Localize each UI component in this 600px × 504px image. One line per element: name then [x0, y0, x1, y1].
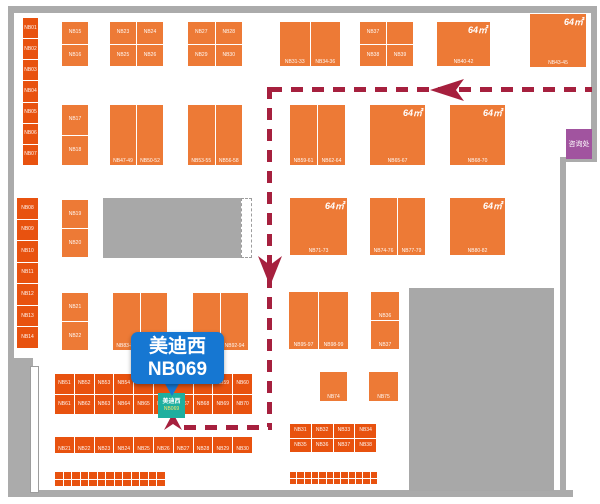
wall-segment: [8, 6, 14, 360]
booth-number-label: NB37: [367, 29, 380, 36]
booth-number-label: NB47-49: [113, 158, 133, 165]
booth-d4: NB36NB37: [371, 292, 399, 349]
booth-cell: NB68-70: [450, 105, 505, 165]
wall-segment: [13, 490, 573, 497]
booth-cell: [349, 479, 355, 485]
booth-cell: NB14: [17, 327, 38, 348]
booth-cell: NB60: [233, 374, 252, 394]
booth-number-label: NB10: [21, 248, 34, 255]
booth-cell: NB92-94: [221, 293, 248, 350]
booth-cell: NB23: [110, 22, 136, 44]
booth-cell: [149, 480, 157, 487]
booth-number-label: NB21: [58, 446, 71, 453]
booth-number-label: NB30: [222, 52, 235, 59]
booth-cell: NB07: [23, 145, 38, 165]
booth-cell: [140, 480, 148, 487]
service-area-block: [103, 198, 242, 258]
booth-cell: [305, 472, 311, 478]
booth-cell: NB34-36: [311, 22, 341, 66]
booth-cell: NB39: [387, 45, 413, 67]
booth-cell: [312, 472, 318, 478]
booth-cell: [319, 472, 325, 478]
booth-col-c: NB19NB20: [62, 200, 88, 257]
booth-cell: NB56-58: [216, 105, 243, 165]
booth-cell: [290, 479, 296, 485]
booth-number-label: NB07: [24, 151, 37, 158]
callout-pointer: [164, 382, 180, 396]
booth-cell: NB64: [114, 395, 133, 415]
booth-cell: [64, 480, 72, 487]
booth-col-d: NB21NB22: [62, 293, 88, 350]
booth-a2: NB27NB28NB29NB30: [188, 22, 242, 66]
booth-number-label: NB50-52: [140, 158, 160, 165]
booth-number-label: NB62-64: [322, 158, 342, 165]
booth-number-label: NB62: [78, 401, 91, 408]
booth-cell: NB31-33: [280, 22, 310, 66]
booth-number-label: NB23: [98, 446, 111, 453]
booth-cell: NB34: [355, 424, 376, 438]
booth-number-label: NB11: [21, 269, 33, 276]
booth-number-label: NB31: [294, 427, 307, 434]
booth-number-label: NB17: [69, 116, 82, 123]
booth-number-label: NB64: [118, 401, 131, 408]
booth-cell: NB18: [62, 136, 88, 166]
booth-g-right: [290, 472, 377, 484]
booth-number-label: NB70: [236, 401, 249, 408]
booth-cell: [64, 472, 72, 479]
booth-cell: NB68: [194, 395, 213, 415]
booth-cell: [55, 480, 63, 487]
booth-cell: NB28: [194, 437, 213, 453]
booth-cell: [363, 472, 369, 478]
booth-cell: [363, 479, 369, 485]
booth-cell: NB25: [134, 437, 153, 453]
booth-cell: [115, 480, 123, 487]
booth-number-label: NB24: [118, 446, 131, 453]
booth-cell: NB35: [290, 439, 311, 453]
booth-cell: NB71-73: [290, 198, 347, 255]
booth-number-label: NB27: [195, 29, 208, 36]
booth-number-label: NB24: [144, 29, 157, 36]
booth-a3: NB31-33NB34-36: [280, 22, 340, 66]
booth-cell: NB03: [23, 60, 38, 80]
booth-number-label: NB16: [69, 52, 82, 59]
booth-number-label: NB56-58: [219, 158, 239, 165]
booth-number-label: NB74: [327, 394, 340, 401]
route-dashed-line: [184, 425, 272, 430]
booth-cell: [149, 472, 157, 479]
booth-number-label: NB18: [69, 147, 82, 154]
callout-booth-number: NB069: [148, 358, 207, 381]
service-area-block: [409, 288, 554, 491]
booth-number-label: NB15: [69, 29, 82, 36]
booth-cell: [72, 472, 80, 479]
booth-cell: [157, 480, 165, 487]
booth-number-label: NB74-76: [374, 248, 394, 255]
booth-cell: NB26: [137, 45, 163, 67]
booth-cell: [319, 479, 325, 485]
booth-cell: NB52: [75, 374, 94, 394]
booth-cell: NB43-45: [530, 14, 586, 67]
booth-number-label: NB04: [24, 88, 37, 95]
booth-cell: NB31: [290, 424, 311, 438]
booth-number-label: NB52: [78, 380, 91, 387]
booth-number-label: NB32: [316, 427, 329, 434]
floor-plan-map: 美迪西 NB069 美迪西 NB069 咨询处 NB01NB02NB03NB04…: [0, 0, 600, 504]
booth-cell: [356, 479, 362, 485]
booth-number-label: NB22: [69, 333, 82, 340]
booth-number-label: NB75: [377, 394, 390, 401]
booth-number-label: NB53-55: [191, 158, 211, 165]
booth-d3: NB95-97NB98-99: [289, 292, 348, 349]
booth-cell: NB36: [371, 292, 399, 320]
booth-cell: [81, 472, 89, 479]
booth-number-label: NB27: [177, 446, 190, 453]
booth-cell: NB65: [134, 395, 153, 415]
booth-cell: NB65-67: [370, 105, 425, 165]
booth-cell: NB30: [216, 45, 243, 67]
booth-number-label: NB60: [236, 380, 249, 387]
wall-recess: [30, 366, 39, 493]
booth-cell: [290, 472, 296, 478]
booth-number-label: NB13: [21, 313, 34, 320]
booth-number-label: NB23: [117, 29, 130, 36]
booth-cell: NB51: [55, 374, 74, 394]
booth-cell: NB27: [188, 22, 215, 44]
booth-number-label: NB26: [157, 446, 170, 453]
booth-number-label: NB51: [58, 380, 71, 387]
booth-number-label: NB21: [69, 304, 82, 311]
booth-number-label: NB68: [197, 401, 210, 408]
booth-cell: [327, 472, 333, 478]
booth-number-label: NB33: [338, 427, 351, 434]
booth-cell: [387, 22, 413, 44]
booth-number-label: NB30: [236, 446, 249, 453]
booth-cell: NB53-55: [188, 105, 215, 165]
booth-number-label: NB95-97: [294, 342, 314, 349]
booth-cell: NB13: [17, 306, 38, 327]
booth-cell: [341, 472, 347, 478]
booth-cell: NB10: [17, 241, 38, 262]
booth-cell: [297, 472, 303, 478]
booth-cell: [123, 480, 131, 487]
booth-col-b: NB17NB18: [62, 105, 88, 165]
booth-cell: NB37: [360, 22, 386, 44]
highlighted-booth-medicilon: 美迪西 NB069: [158, 393, 185, 418]
booth-cell: [72, 480, 80, 487]
booth-number-label: NB37: [338, 442, 351, 449]
booth-number-label: NB03: [24, 67, 37, 74]
route-arrow-down: [258, 256, 282, 291]
booth-number-label: NB28: [197, 446, 210, 453]
booth-cell: NB59-61: [290, 105, 317, 165]
booth-cell: [297, 479, 303, 485]
booth-number-label: NB54: [118, 380, 131, 387]
booth-number-label: NB98-99: [324, 342, 344, 349]
booth-cell: NB38: [360, 45, 386, 67]
booth-number-label: NB68-70: [468, 158, 488, 165]
booth-cell: [140, 472, 148, 479]
booth-number-label: NB59-61: [294, 158, 314, 165]
booth-number-label: NB08: [21, 205, 34, 212]
information-desk: 咨询处: [566, 129, 592, 159]
booth-cell: NB22: [62, 322, 88, 350]
booth-cell: NB70: [233, 395, 252, 415]
booth-number-label: NB25: [117, 52, 130, 59]
booth-number-label: NB19: [69, 211, 82, 218]
route-arrow-left: [430, 79, 464, 106]
booth-cell: NB32: [312, 424, 333, 438]
booth-strip-left-2: NB08NB09NB10NB11NB12NB13NB14: [17, 198, 38, 348]
booth-number-label: NB31-33: [285, 59, 305, 66]
booth-cell: NB38: [355, 439, 376, 453]
booth-cell: [157, 472, 165, 479]
booth-cell: NB50-52: [137, 105, 163, 165]
booth-cell: NB06: [23, 124, 38, 144]
booth-c2: NB74-76NB77-79: [370, 198, 425, 255]
booth-cell: NB98-99: [319, 292, 348, 349]
booth-cell: NB11: [17, 263, 38, 284]
booth-cell: NB69: [213, 395, 232, 415]
booth-cell: NB25: [110, 45, 136, 67]
booth-cell: NB09: [17, 220, 38, 241]
booth-number-label: NB28: [222, 29, 235, 36]
booth-cell: NB62: [75, 395, 94, 415]
booth-cell: [371, 479, 377, 485]
booth-cell: NB63: [95, 395, 114, 415]
booth-number-label: NB36: [316, 442, 329, 449]
booth-cell: [115, 472, 123, 479]
booth-cell: NB28: [216, 22, 243, 44]
booth-cell: NB27: [174, 437, 193, 453]
booth-number-label: NB80-82: [468, 248, 488, 255]
booth-number-label: NB77-79: [402, 248, 422, 255]
booth-a4: NB37NB38NB39: [360, 22, 413, 66]
booth-number-label: NB14: [21, 334, 34, 341]
booth-number-label: NB02: [24, 46, 37, 53]
booth-number-label: NB34-36: [315, 59, 335, 66]
booth-cell: NB04: [23, 81, 38, 101]
booth-a6: NB43-4564㎡: [530, 14, 586, 67]
booth-cell: [305, 479, 311, 485]
booth-cell: NB36: [312, 439, 333, 453]
booth-b2: NB53-55NB56-58: [188, 105, 242, 165]
booth-cell: [55, 472, 63, 479]
booth-number-label: NB61: [58, 401, 71, 408]
booth-number-label: NB43-45: [548, 60, 568, 67]
booth-cell: [341, 479, 347, 485]
information-desk-label: 咨询处: [569, 139, 590, 149]
booth-cell: [349, 472, 355, 478]
dashed-outline-area: [241, 198, 252, 258]
booth-cell: [81, 480, 89, 487]
booth-number-label: NB65: [137, 401, 150, 408]
booth-cell: [132, 480, 140, 487]
booth-cell: NB74: [320, 372, 347, 401]
booth-cell: [89, 472, 97, 479]
booth-number-label: NB34: [359, 427, 372, 434]
booth-cell: [132, 472, 140, 479]
booth-cell: NB01: [23, 18, 38, 38]
booth-cell: NB62-64: [318, 105, 345, 165]
booth-number-label: NB09: [21, 226, 34, 233]
booth-number-label: NB25: [137, 446, 150, 453]
booth-number-label: NB06: [24, 130, 37, 137]
booth-number-label: NB38: [359, 442, 372, 449]
booth-cell: NB33: [334, 424, 355, 438]
booth-c3: NB80-8264㎡: [450, 198, 505, 255]
booth-cell: [106, 480, 114, 487]
booth-number-label: NB35: [294, 442, 307, 449]
booth-cell: NB08: [17, 198, 38, 219]
booth-cell: NB05: [23, 103, 38, 123]
booth-number-label: NB29: [195, 52, 208, 59]
booth-cell: NB75: [369, 372, 398, 401]
booth-a5: NB40-4264㎡: [437, 22, 490, 66]
booth-number-label: NB53: [98, 380, 111, 387]
booth-cell: NB17: [62, 105, 88, 135]
booth-number-label: NB40-42: [454, 59, 474, 66]
booth-c1: NB71-7364㎡: [290, 198, 347, 255]
booth-cell: [98, 472, 106, 479]
wall-segment: [560, 157, 566, 497]
callout-company-name: 美迪西: [149, 335, 206, 358]
booth-cell: [89, 480, 97, 487]
booth-cell: NB15: [62, 22, 88, 44]
booth-sq2: NB75: [369, 372, 398, 401]
booth-cell: NB02: [23, 39, 38, 59]
booth-cell: NB16: [62, 45, 88, 67]
booth-number-label: NB29: [217, 446, 230, 453]
booth-number-label: NB05: [24, 109, 37, 116]
booth-cell: NB19: [62, 200, 88, 228]
booth-cell: NB22: [75, 437, 94, 453]
booth-cell: [334, 479, 340, 485]
booth-cell: [106, 472, 114, 479]
booth-cell: [312, 479, 318, 485]
booth-cell: NB21: [62, 293, 88, 321]
booth-number-label: NB65-67: [388, 158, 408, 165]
booth-cell: [123, 472, 131, 479]
booth-cell: NB20: [62, 229, 88, 257]
booth-cell: NB47-49: [110, 105, 136, 165]
booth-number-label: NB39: [394, 52, 407, 59]
booth-row-f: NB21NB22NB23NB24NB25NB26NB27NB28NB29NB30: [55, 437, 252, 453]
booth-number-label: NB63: [98, 401, 111, 408]
booth-number-label: NB71-73: [309, 248, 329, 255]
booth-number-label: NB37: [379, 342, 392, 349]
booth-cell: [98, 480, 106, 487]
booth-row-g: [55, 472, 165, 486]
booth-number-label: NB01: [24, 25, 37, 32]
highlighted-booth-number: NB069: [164, 406, 179, 412]
booth-cell: NB29: [188, 45, 215, 67]
booth-cell: NB80-82: [450, 198, 505, 255]
booth-cell: [327, 479, 333, 485]
booth-callout: 美迪西 NB069: [131, 332, 224, 384]
booth-cell: NB26: [154, 437, 173, 453]
booth-number-label: NB36: [379, 313, 392, 320]
booth-b5: NB68-7064㎡: [450, 105, 505, 165]
highlighted-booth-name: 美迪西: [162, 399, 180, 406]
booth-b4: NB65-6764㎡: [370, 105, 425, 165]
booth-cell: NB74-76: [370, 198, 397, 255]
booth-cell: NB24: [114, 437, 133, 453]
booth-number-label: NB38: [367, 52, 380, 59]
booth-cell: NB24: [137, 22, 163, 44]
booth-cell: [356, 472, 362, 478]
booth-sq1: NB74: [320, 372, 347, 401]
booth-cell: NB37: [334, 439, 355, 453]
booth-cell: NB37: [371, 321, 399, 349]
booth-number-label: NB92-94: [225, 343, 245, 350]
booth-cell: NB53: [95, 374, 114, 394]
booth-cell: NB77-79: [398, 198, 425, 255]
booth-cell: NB21: [55, 437, 74, 453]
booth-number-label: NB26: [144, 52, 157, 59]
booth-cell: NB40-42: [437, 22, 490, 66]
booth-cell: NB95-97: [289, 292, 318, 349]
booth-number-label: NB12: [21, 291, 34, 298]
booth-cell: [371, 472, 377, 478]
booth-b3: NB59-61NB62-64: [290, 105, 345, 165]
booth-strip-left-1: NB01NB02NB03NB04NB05NB06NB07: [23, 18, 38, 165]
booth-a1: NB23NB24NB25NB26: [110, 22, 163, 66]
booth-cell: [334, 472, 340, 478]
booth-col-a: NB15NB16: [62, 22, 88, 66]
wall-segment: [8, 6, 597, 13]
booth-number-label: NB20: [69, 240, 82, 247]
booth-cell: NB29: [213, 437, 232, 453]
booth-cell: NB23: [95, 437, 114, 453]
booth-number-label: NB22: [78, 446, 91, 453]
booth-b1: NB47-49NB50-52: [110, 105, 163, 165]
booth-number-label: NB69: [217, 401, 230, 408]
booth-cell: NB30: [233, 437, 252, 453]
booth-f-right: NB31NB32NB33NB34NB35NB36NB37NB38: [290, 424, 376, 452]
booth-cell: NB12: [17, 284, 38, 305]
booth-cell: NB61: [55, 395, 74, 415]
